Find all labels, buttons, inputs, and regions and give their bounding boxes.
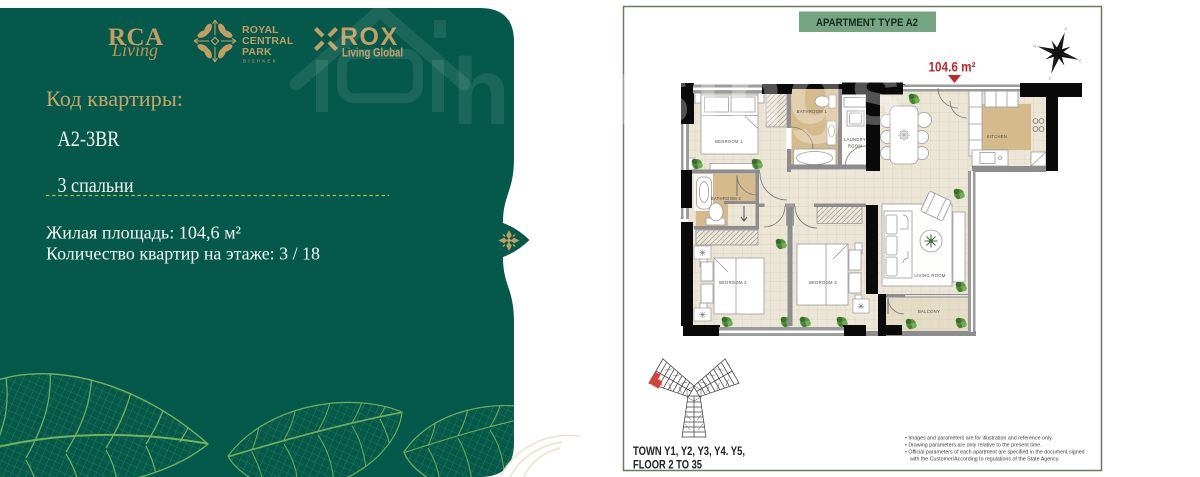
svg-text:Количество квартир на этаже: 3: Количество квартир на этаже: 3 / 18 [46, 244, 320, 264]
svg-text:LAUNDRY: LAUNDRY [844, 137, 866, 142]
svg-text:ROOM: ROOM [848, 144, 862, 149]
svg-text:Код квартиры:: Код квартиры: [46, 86, 183, 111]
svg-text:PARK: PARK [242, 46, 272, 58]
svg-text:• Drawing parameters are only: • Drawing parameters are only relative t… [905, 443, 1042, 449]
svg-text:• Images and parameters are f: • Images and parameters are for illustra… [905, 436, 1053, 442]
svg-text:BEDROOM 2: BEDROOM 2 [719, 280, 747, 285]
svg-text:FLOOR 2 TO 35: FLOOR 2 TO 35 [633, 460, 702, 472]
svg-text:✳: ✳ [699, 248, 707, 258]
svg-text:KITCHEN: KITCHEN [987, 134, 1007, 139]
svg-text:• Official parameters of each: • Official parameters of each apartment … [905, 450, 1085, 456]
svg-text:Living: Living [111, 40, 158, 60]
svg-text:A2-3BR: A2-3BR [58, 126, 120, 151]
svg-text:LIVING ROOM: LIVING ROOM [914, 273, 945, 278]
svg-text:TOWN Y1, Y2, Y3, Y4. Y5,: TOWN Y1, Y2, Y3, Y4. Y5, [633, 446, 745, 458]
svg-text:BEDROOM 1: BEDROOM 1 [715, 139, 743, 144]
svg-text:✳: ✳ [857, 302, 865, 312]
svg-text:BISHKEK: BISHKEK [243, 59, 278, 65]
svg-text:Жилая площадь: 104,6 м²: Жилая площадь: 104,6 м² [46, 223, 241, 243]
svg-text:BATHROOM 2: BATHROOM 2 [711, 196, 742, 201]
svg-text:BALCONY: BALCONY [918, 309, 940, 314]
svg-text:housings: housings [452, 39, 906, 145]
svg-text:✳: ✳ [699, 310, 707, 320]
svg-text:BEDROOM 3: BEDROOM 3 [809, 280, 837, 285]
svg-text:BATHROOM 1: BATHROOM 1 [797, 109, 828, 114]
svg-text:APARTMENT TYPE A2: APARTMENT TYPE A2 [816, 17, 918, 29]
svg-text:3 спальни: 3 спальни [58, 173, 134, 197]
svg-text:with the Customer/According to: with the Customer/According to regulatio… [910, 457, 1059, 463]
svg-text:104.6 m²: 104.6 m² [929, 60, 976, 75]
